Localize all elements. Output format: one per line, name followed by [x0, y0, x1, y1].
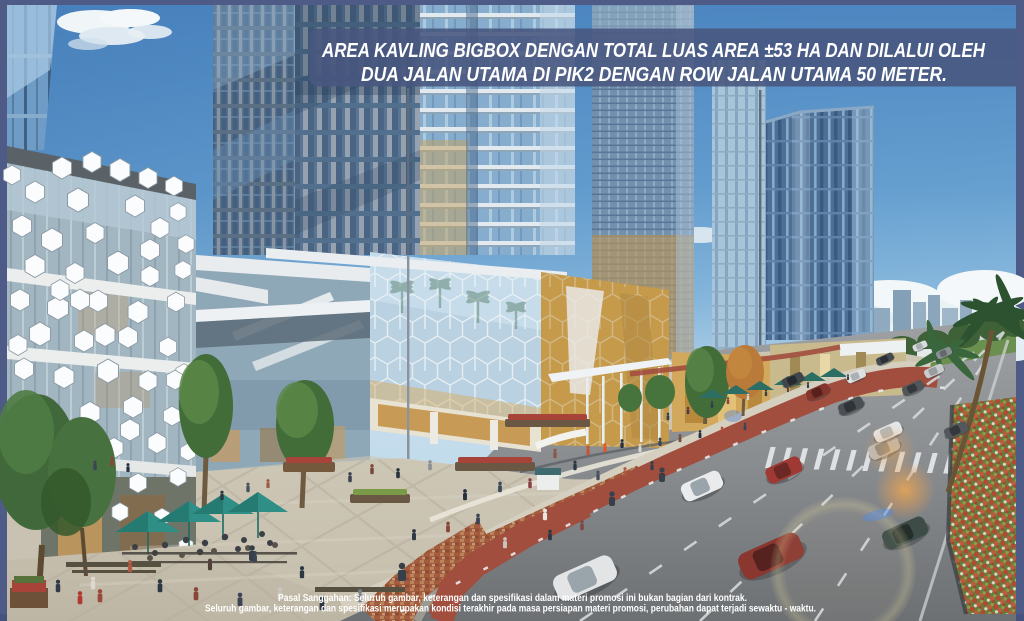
svg-text:AREA KAVLING BIGBOX DENGAN TOT: AREA KAVLING BIGBOX DENGAN TOTAL LUAS AR…: [321, 39, 986, 62]
svg-text:Seluruh gambar, keterangan dan: Seluruh gambar, keterangan dan spesifika…: [205, 604, 816, 615]
svg-text:Pasal Sanggahan: Seluruh gamba: Pasal Sanggahan: Seluruh gambar, keteran…: [278, 593, 747, 604]
svg-text:DUA JALAN UTAMA DI PIK2 DENGAN: DUA JALAN UTAMA DI PIK2 DENGAN ROW JALAN…: [361, 63, 947, 86]
